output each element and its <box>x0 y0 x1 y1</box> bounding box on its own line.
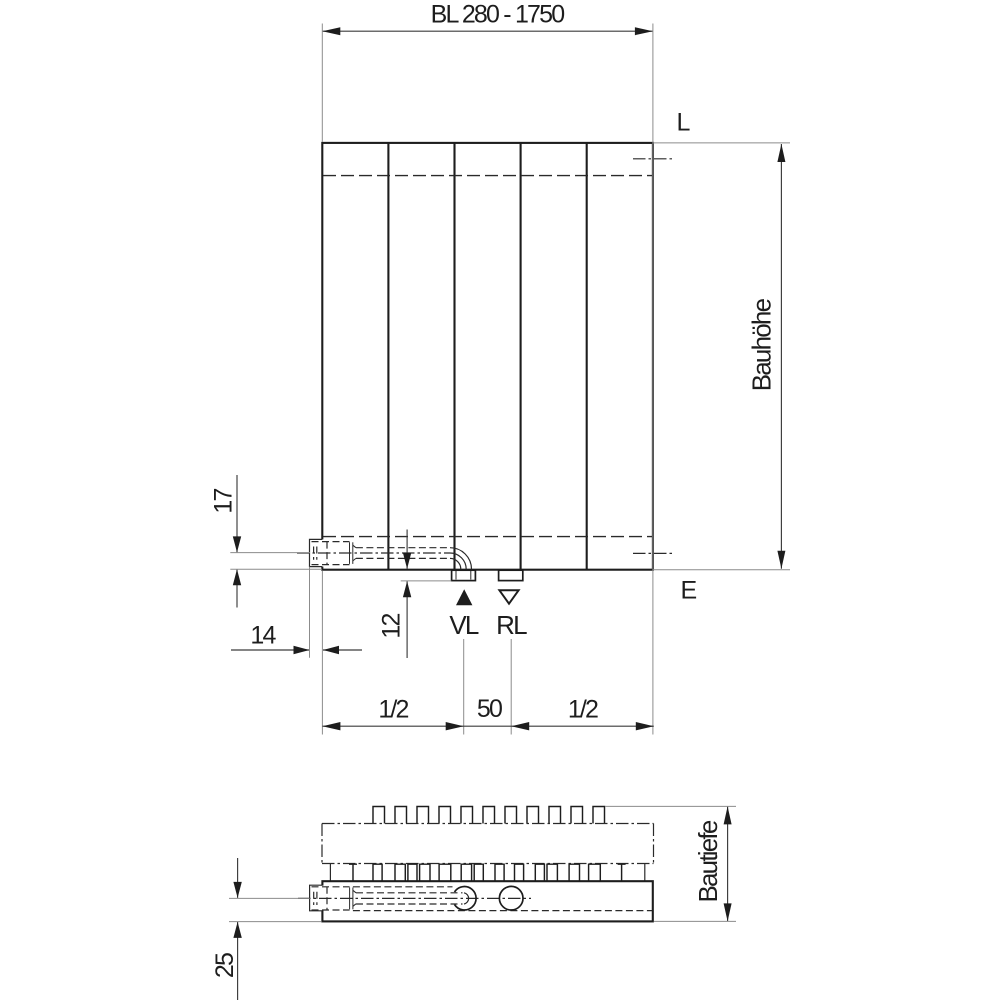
svg-text:1/2: 1/2 <box>568 696 598 724</box>
svg-text:Bauhöhe: Bauhöhe <box>747 298 777 391</box>
svg-text:RL: RL <box>496 610 527 640</box>
svg-text:12: 12 <box>378 614 406 639</box>
svg-text:VL: VL <box>449 610 479 640</box>
svg-text:Bautiefe: Bautiefe <box>693 820 723 902</box>
svg-text:25: 25 <box>211 953 239 978</box>
svg-text:50: 50 <box>477 695 502 723</box>
svg-text:1/2: 1/2 <box>378 696 408 724</box>
svg-text:BL 280 - 1750: BL 280 - 1750 <box>431 1 565 29</box>
svg-text:14: 14 <box>250 622 276 650</box>
svg-text:17: 17 <box>210 489 238 514</box>
svg-text:L: L <box>677 109 691 137</box>
svg-text:E: E <box>681 577 697 605</box>
